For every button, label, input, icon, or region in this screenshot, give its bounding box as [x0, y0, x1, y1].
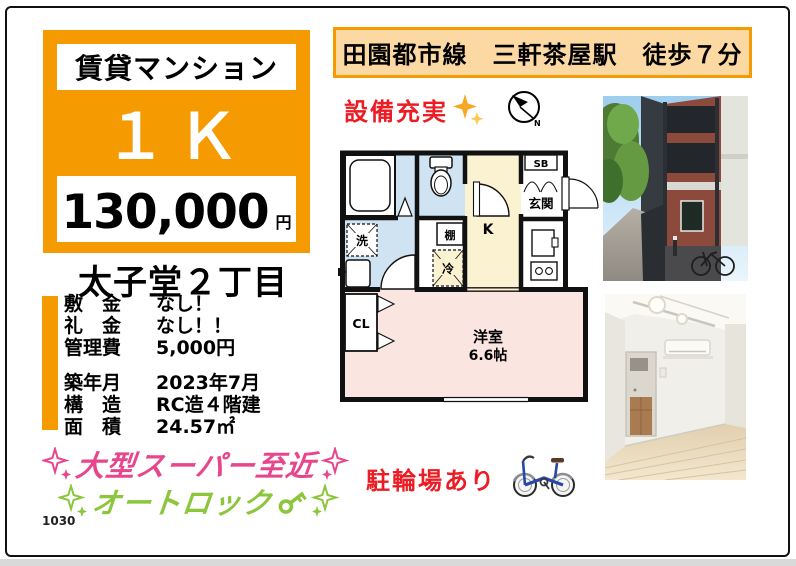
entrance-label: 玄関	[528, 196, 553, 211]
accent-bar	[42, 296, 58, 430]
rent-price: 130,000	[61, 189, 268, 236]
equipment-badge: 設備充実	[344, 92, 486, 127]
detail-value: なし！！	[156, 315, 232, 337]
exterior-photo	[603, 96, 748, 281]
detail-label: 敷 金	[64, 293, 152, 315]
feature-supermarket-label: 大型スーパー至近	[74, 443, 318, 485]
svg-text:N: N	[534, 119, 541, 128]
equipment-label: 設備充実	[344, 92, 448, 127]
rent-price-unit: 円	[276, 209, 292, 233]
feature-supermarket: 大型スーパー至近	[42, 443, 350, 485]
shoebox: SB	[525, 155, 557, 170]
toilet-tank	[430, 157, 452, 168]
kitchen-label: K	[483, 222, 495, 238]
bicycle-parking-badge: 駐輪場あり	[366, 461, 496, 496]
station-access-label: 田園都市線 三軒茶屋駅 徒歩７分	[343, 35, 743, 70]
compass-icon: N	[503, 88, 549, 134]
room-size-label: 6.6帖	[469, 347, 508, 364]
layout-type: １Ｋ	[43, 88, 310, 174]
sparkle-icon	[452, 93, 486, 127]
entrance-door-leaf	[562, 177, 569, 210]
detail-label: 面 積	[64, 416, 152, 438]
property-details: 敷 金 なし！ 礼 金 なし！！ 管理費 5,000円 築年月 2023年7月 …	[64, 293, 314, 438]
detail-row-area: 面 積 24.57㎡	[64, 416, 314, 438]
feature-autolock-label: オートロック	[90, 480, 274, 522]
stove-box	[531, 262, 557, 280]
sparkle-icon	[320, 447, 350, 481]
detail-value: 5,000円	[156, 337, 235, 359]
bicycle-parking-label: 駐輪場あり	[366, 467, 496, 495]
detail-row-built: 築年月 2023年7月	[64, 372, 314, 394]
detail-row-deposit: 敷 金 なし！	[64, 293, 314, 315]
price-panel: 賃貸マンション １Ｋ 130,000 円	[43, 30, 310, 253]
detail-row-fee: 管理費 5,000円	[64, 337, 314, 359]
category-label: 賃貸マンション	[75, 47, 278, 87]
bicycle-icon	[510, 449, 578, 499]
ac-unit	[663, 340, 713, 359]
category-box: 賃貸マンション	[57, 44, 296, 90]
key-icon	[276, 486, 310, 516]
price-box: 130,000 円	[57, 176, 296, 242]
washer-box: 洗	[347, 224, 377, 256]
toilet-bowl	[431, 170, 451, 196]
detail-label: 管理費	[64, 337, 152, 359]
kitchen-door-leaf	[474, 182, 480, 216]
flyer-page: 賃貸マンション １Ｋ 130,000 円 太子堂２丁目 敷 金 なし！ 礼 金 …	[0, 0, 796, 566]
interior-photo	[605, 294, 746, 480]
fridge-box: 冷	[433, 250, 463, 286]
sparkle-icon	[310, 484, 340, 518]
svg-text:棚: 棚	[445, 228, 456, 242]
window-mark	[444, 397, 528, 403]
detail-row-structure: 構 造 RC造４階建	[64, 394, 314, 416]
svg-text:冷: 冷	[442, 261, 454, 276]
detail-value: 2023年7月	[156, 372, 260, 394]
entrance-door-arc	[569, 179, 598, 208]
sparkle-icon	[58, 484, 88, 518]
sparkle-icon	[42, 447, 72, 481]
svg-text:CL: CL	[352, 316, 369, 331]
floorplan: 洗 棚 冷 K SB 玄	[336, 144, 602, 408]
outside-margin	[0, 559, 796, 566]
station-access-box: 田園都市線 三軒茶屋駅 徒歩７分	[333, 27, 752, 78]
bathtub	[350, 160, 390, 211]
room-label: 洋室	[473, 328, 503, 346]
flyer-code: 1030	[42, 514, 75, 528]
detail-value: 24.57㎡	[156, 416, 235, 438]
detail-label: 築年月	[64, 372, 152, 394]
detail-row-keymoney: 礼 金 なし！！	[64, 315, 314, 337]
svg-text:洗: 洗	[356, 233, 368, 248]
detail-label: 礼 金	[64, 315, 152, 337]
detail-value: RC造４階建	[156, 394, 261, 416]
kitchen-doorway	[626, 352, 656, 436]
shelf-box: 棚	[437, 223, 463, 245]
water-heater-box	[532, 230, 558, 256]
svg-text:SB: SB	[534, 159, 549, 170]
detail-value: なし！	[156, 293, 213, 315]
feature-autolock: オートロック	[58, 480, 340, 522]
detail-label: 構 造	[64, 394, 152, 416]
